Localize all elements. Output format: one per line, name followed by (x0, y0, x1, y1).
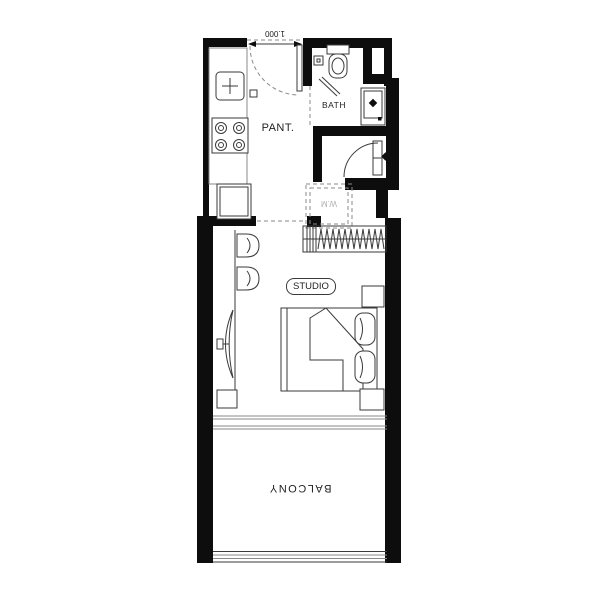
bar-stool-icon-2 (237, 267, 259, 290)
studio-right-wall (385, 218, 401, 563)
balcony-label: BALCONY (255, 482, 345, 494)
wardrobe (303, 226, 386, 252)
floor-plan: PANT. BATH STUDIO W.M BALCONY 1.000 (0, 0, 600, 600)
bath-bottom-wall (313, 126, 388, 136)
pillow-icon (355, 313, 375, 345)
pillow-icon-2 (355, 351, 375, 383)
kitchen-left-wall (203, 38, 209, 224)
shower-screen-icon (319, 79, 337, 96)
console-end-unit (217, 390, 237, 408)
sliding-glass-door-icon (213, 416, 387, 429)
foyer-left-wall (313, 130, 322, 182)
studio-left-wall (197, 216, 213, 563)
floor-drain-icon (314, 56, 323, 65)
entry-door-swing-arc (250, 46, 299, 95)
entry-door (247, 40, 303, 97)
pantry-label: PANT. (256, 122, 300, 134)
fridge-icon (217, 184, 251, 219)
bathroom (310, 45, 385, 126)
toilet-tank (327, 45, 349, 54)
wall-below-foyer (376, 188, 388, 218)
tv-bracket (217, 339, 223, 349)
basin-drain (378, 117, 382, 121)
floor-drain-inner (317, 59, 320, 62)
kitchen-counter (209, 48, 247, 184)
bar-stool-icon (237, 234, 259, 257)
balcony-railing-icon (213, 552, 387, 563)
dimension-arrow-left (248, 41, 256, 47)
floor-plan-drawing (0, 0, 600, 600)
nightstand-icon-2 (360, 389, 384, 410)
studio-furniture (217, 230, 384, 410)
pantry-bottom-wall-right (307, 216, 321, 227)
entry-dimension-label: 1.000 (258, 29, 292, 38)
studio-label: STUDIO (286, 278, 336, 295)
kitchen (209, 48, 306, 221)
door-switch-icon (250, 90, 257, 97)
washing-machine-label: W.M (314, 199, 344, 208)
top-left-wall (203, 38, 247, 47)
foyer (344, 141, 390, 177)
bath-label: BATH (318, 100, 350, 110)
nightstand-icon (362, 286, 384, 307)
bath-left-wall (303, 46, 312, 86)
shower-screen-icon-2 (322, 77, 340, 94)
entry-door-leaf-icon (297, 45, 302, 91)
